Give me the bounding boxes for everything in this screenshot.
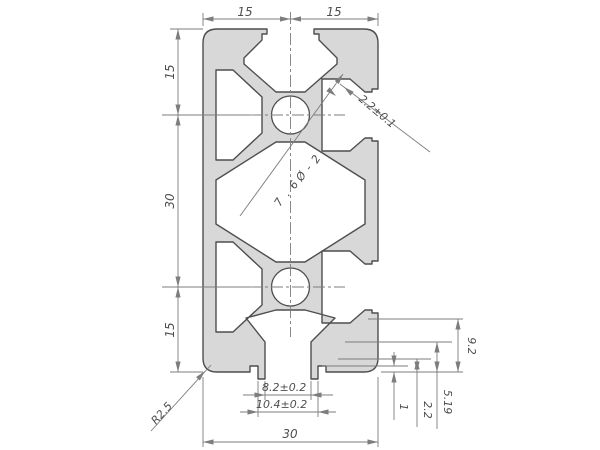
- note-slot-wall-thickness: 2.2±0.1: [356, 92, 398, 130]
- note-corner-radius: R2.5: [149, 400, 175, 427]
- dim-top-right: 15: [326, 5, 341, 19]
- dim-step-5-19: 5.19: [441, 390, 454, 415]
- dimension-lines: [151, 19, 458, 442]
- drawing-canvas: 15 15 15 30 15 2.2±0.1 2 - Ø 6 . 7 R2.5 …: [0, 0, 600, 450]
- svg-text:7: 7: [272, 196, 287, 209]
- dim-left-bottom: 15: [163, 322, 177, 337]
- dim-top-left: 15: [237, 5, 252, 19]
- dim-step-2-2: 2.2: [421, 401, 434, 419]
- dim-step-9-2: 9.2: [465, 337, 478, 355]
- dim-slot-outer: 10.4±0.2: [256, 398, 307, 411]
- svg-text:2: 2: [309, 153, 324, 166]
- dim-step-1: 1: [397, 404, 410, 411]
- technical-drawing: 15 15 15 30 15 2.2±0.1 2 - Ø 6 . 7 R2.5 …: [0, 0, 600, 450]
- svg-text:-: -: [302, 163, 315, 173]
- dim-left-mid: 30: [163, 193, 177, 209]
- dim-overall-width: 30: [282, 427, 298, 441]
- dim-left-top: 15: [163, 64, 177, 79]
- dim-slot-opening: 8.2±0.2: [262, 381, 306, 394]
